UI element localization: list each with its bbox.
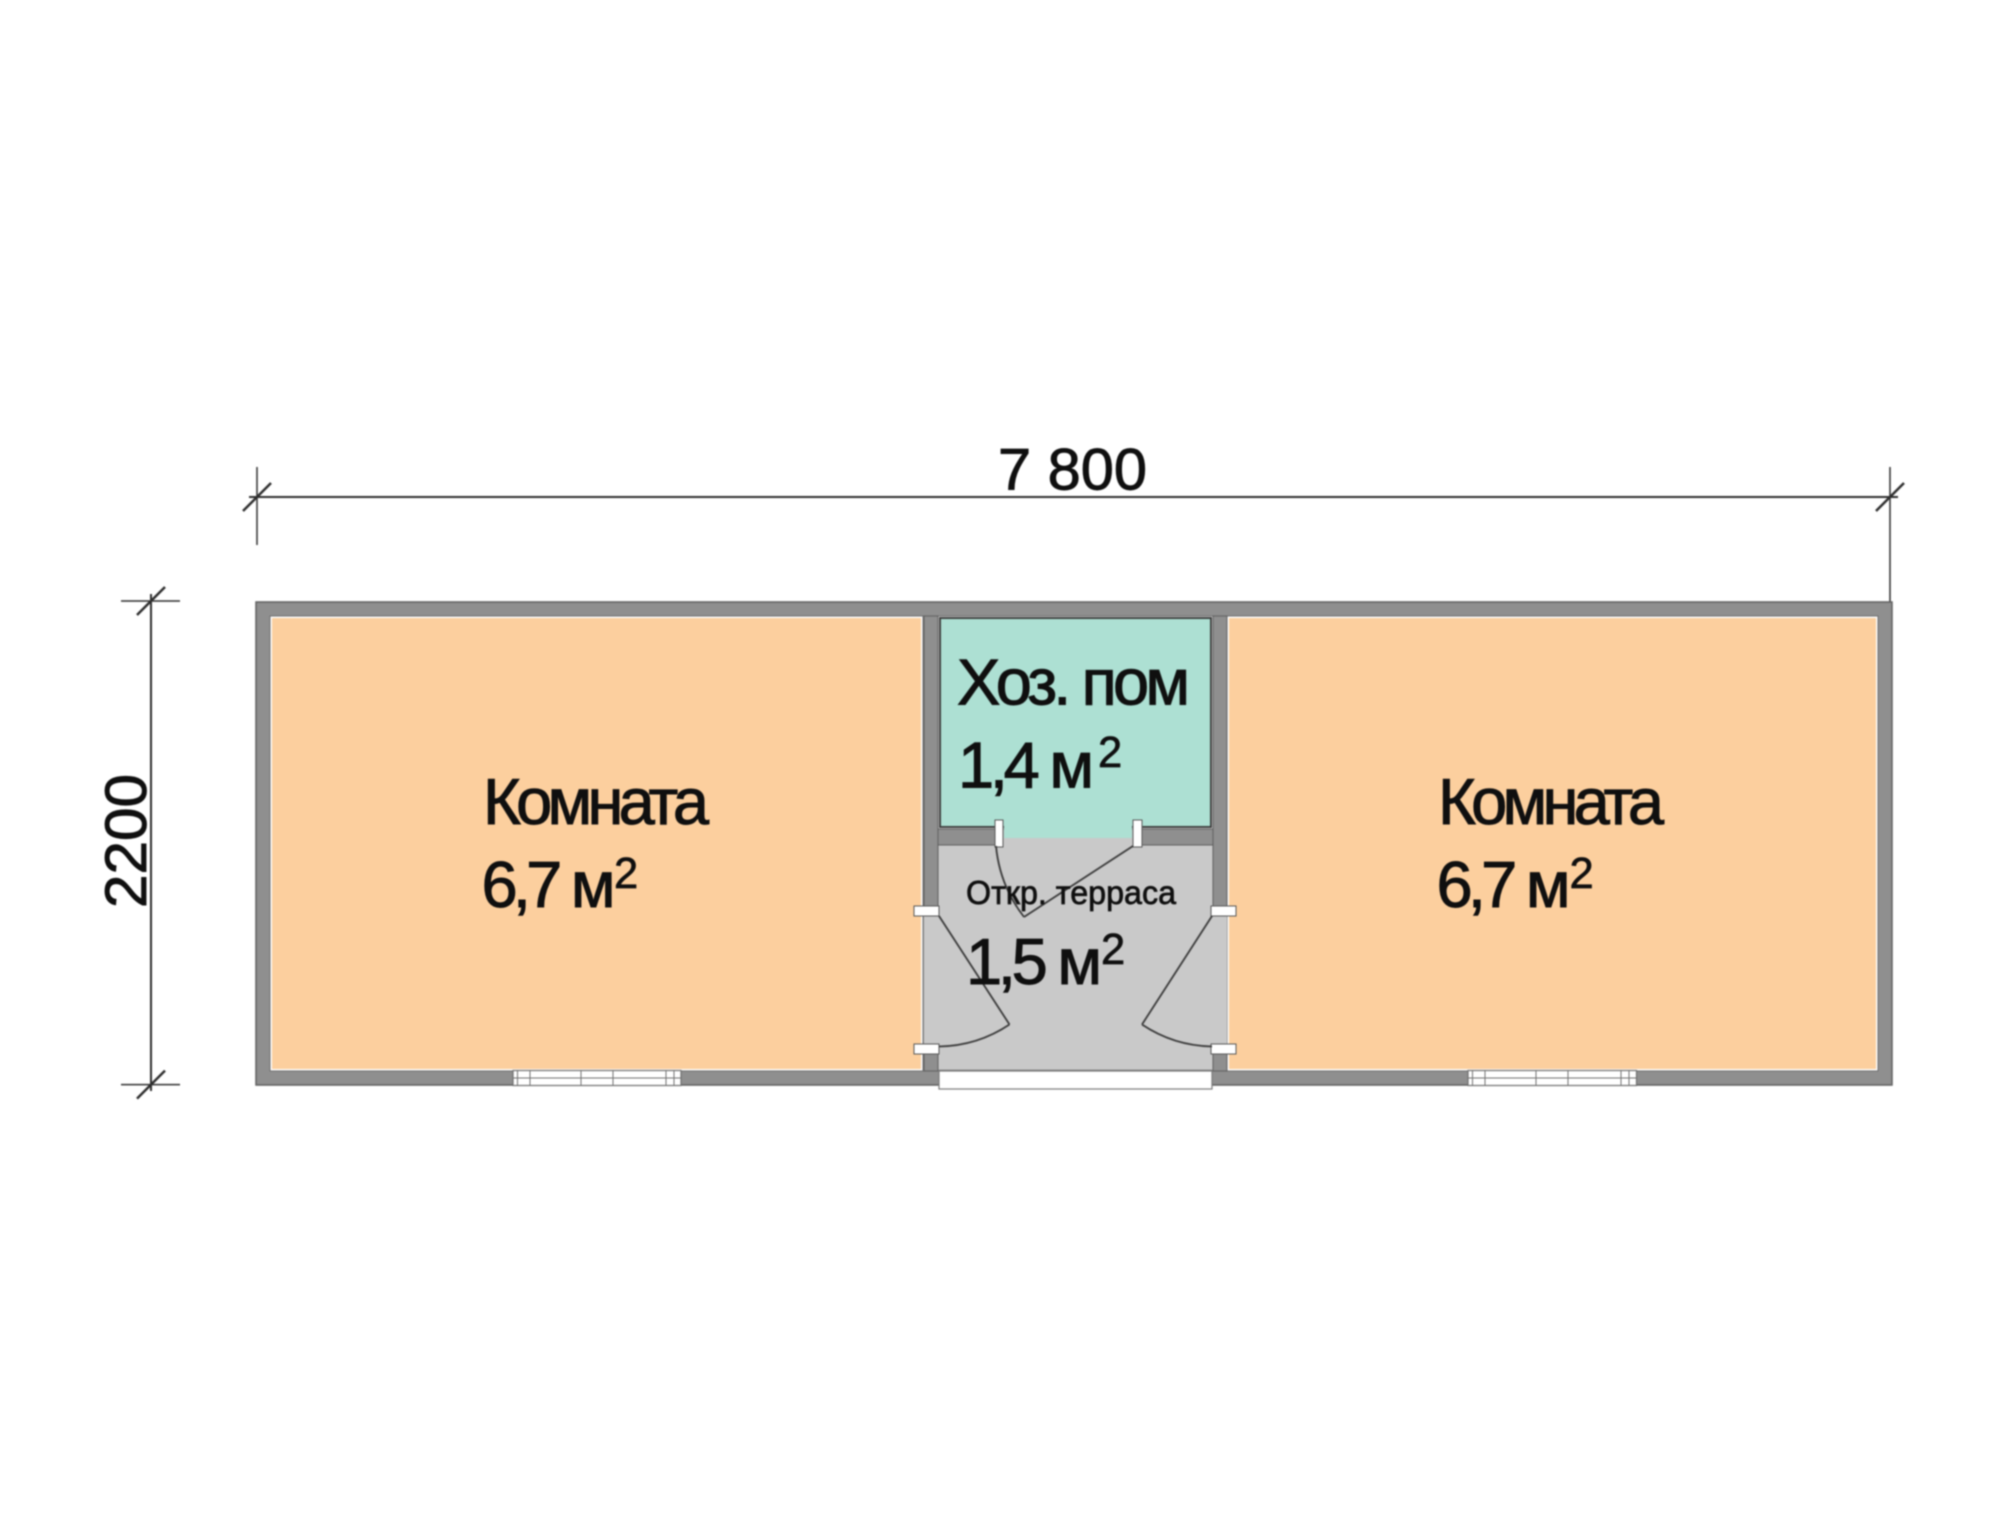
svg-text:Откр. терраса: Откр. терраса — [966, 874, 1177, 911]
svg-text:1,4 м: 1,4 м — [958, 729, 1094, 802]
svg-text:2: 2 — [1570, 850, 1594, 898]
svg-text:2: 2 — [1101, 926, 1125, 974]
svg-text:7 800: 7 800 — [998, 438, 1147, 503]
svg-text:Хоз. пом: Хоз. пом — [957, 645, 1190, 718]
svg-text:2200: 2200 — [94, 774, 159, 908]
svg-text:6,7 м: 6,7 м — [1437, 848, 1571, 921]
svg-text:1,5 м: 1,5 м — [966, 925, 1102, 998]
svg-text:Комната: Комната — [483, 765, 710, 838]
svg-text:Комната: Комната — [1438, 765, 1665, 838]
svg-text:2: 2 — [1098, 729, 1122, 777]
svg-text:2: 2 — [614, 850, 638, 898]
svg-text:6,7 м: 6,7 м — [482, 848, 616, 921]
